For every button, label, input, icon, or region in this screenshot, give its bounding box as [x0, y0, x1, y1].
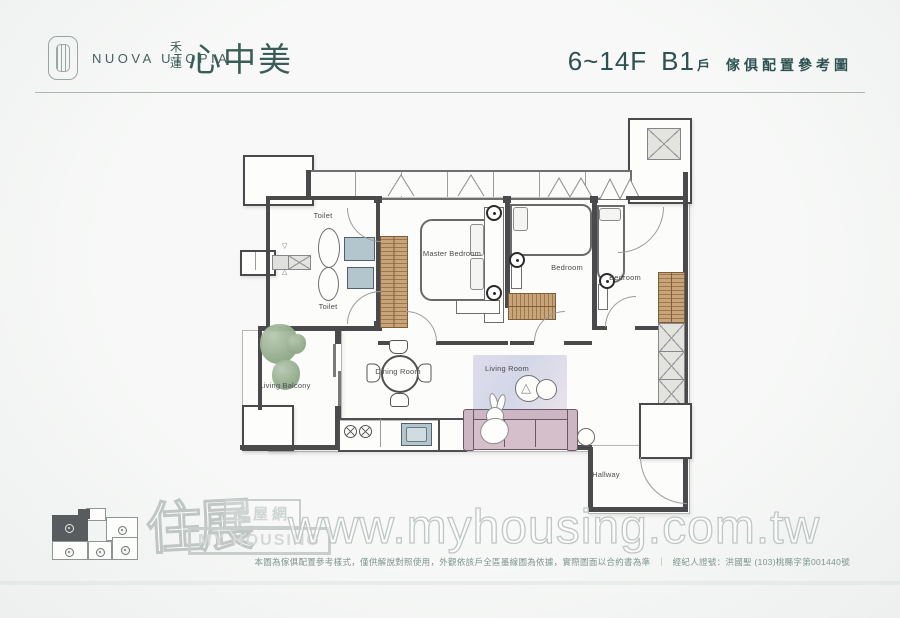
stove-burner-icon — [359, 425, 372, 438]
brand-emblem-icon — [48, 36, 78, 80]
fixture-ring-icon — [486, 205, 502, 221]
room-label-bedroom-right: Bedroom — [595, 273, 655, 282]
pipe-shaft-icon — [658, 351, 685, 381]
unit-marker-icon — [65, 524, 74, 533]
shaft-duct-icon — [288, 255, 311, 270]
watermark-url: www.myhousing.com.tw — [288, 500, 820, 555]
room-label-toilet-lower: Toilet — [302, 302, 354, 311]
unit-marker-icon — [121, 546, 130, 555]
wall-column — [503, 196, 511, 203]
wall-column — [590, 196, 598, 203]
plan-title: 6~14F B1 戶 傢俱配置參考圖 — [568, 46, 852, 77]
plan-title-unit: B1 — [661, 46, 695, 77]
brand-name-cn-vertical: 禾蓮 — [170, 39, 185, 71]
room-label-bedroom-middle: Bedroom — [537, 263, 597, 272]
plan-title-floor: 6~14F — [568, 46, 647, 77]
master-wardrobe — [380, 236, 408, 328]
ottoman — [577, 428, 595, 446]
disclaimer-separator: ｜ — [657, 557, 666, 567]
duct-niche-divider — [255, 252, 256, 270]
exterior-duct-niche — [240, 250, 276, 276]
sofa-cushion-line — [535, 420, 536, 447]
toilet-fixture — [318, 267, 339, 301]
bedroom-bench — [456, 300, 500, 314]
license-text: 經紀人證號：洪國聖 (103)桃縣字第001440號 — [673, 557, 850, 567]
unit-marker-icon — [96, 548, 105, 557]
header-divider — [35, 92, 865, 93]
brand-name-cn-main: 心中美 — [188, 33, 293, 81]
wall-segment — [266, 196, 382, 200]
wall-segment — [335, 328, 341, 344]
bedroom-closet — [658, 272, 685, 323]
flyer-page: NUOVA UTOPIA 禾蓮 心中美 6~14F B1 戶 傢俱配置參考圖 — [0, 0, 900, 618]
keyplan — [50, 506, 140, 564]
triangle-art-icon: △ — [521, 381, 531, 394]
entry-cabinet — [639, 403, 692, 459]
unit-marker-icon — [65, 548, 74, 557]
bathroom-sink — [347, 267, 374, 289]
bottom-edge-strip — [0, 581, 900, 585]
fixture-ring-icon — [509, 252, 525, 268]
wall-art-circle — [536, 379, 557, 400]
wall-segment — [635, 326, 658, 330]
fixture-ring-icon — [486, 285, 502, 301]
vent-mark-icon: ▽ — [282, 243, 287, 250]
room-label-hallway: Hallway — [566, 470, 646, 479]
brand-emblem-bars-icon — [56, 44, 70, 72]
pillow — [470, 258, 484, 290]
toilet-fixture — [318, 228, 340, 268]
plan-title-unit-suffix: 戶 — [697, 55, 710, 74]
wall-column — [374, 196, 382, 203]
floor-plan: ▽ △ — [230, 112, 700, 517]
rabbit-body — [476, 414, 512, 448]
wall-segment — [510, 341, 534, 345]
sliding-door-panel — [333, 344, 336, 377]
room-label-living-room: Living Room — [474, 364, 540, 373]
sliding-door-panel — [338, 371, 341, 406]
room-label-master-bedroom: Master Bedroom — [412, 249, 492, 258]
plan-title-desc: 傢俱配置參考圖 — [726, 55, 852, 75]
room-label-living-balcony: Living Balcony — [245, 381, 325, 390]
wall-segment — [436, 341, 508, 345]
pipe-shaft-icon — [658, 323, 685, 353]
wall-segment — [564, 341, 592, 345]
elevator-shaft-icon — [647, 128, 681, 160]
counter-divider — [380, 419, 381, 447]
kitchen-sink-basin — [406, 427, 427, 442]
wall-segment — [626, 196, 688, 200]
pillow — [513, 207, 528, 231]
wall-segment — [306, 170, 311, 198]
disclaimer-text: 本圖為傢俱配置參考樣式，僅供解說對照使用，外觀依該戶全區墨線圖為依據，實際圖面以… — [254, 557, 650, 567]
room-label-toilet-upper: Toilet — [297, 211, 349, 220]
room-label-dining-room: Dining Room — [358, 367, 438, 376]
wall-segment — [266, 198, 270, 328]
unit-marker-icon — [118, 526, 127, 535]
footer-disclaimer: 本圖為傢俱配置參考樣式，僅供解說對照使用，外觀依該戶全區墨線圖為依據，實際圖面以… — [254, 556, 850, 568]
dining-chair — [390, 393, 409, 407]
vent-mark-icon: △ — [282, 269, 287, 276]
stove-burner-icon — [344, 425, 357, 438]
dining-chair — [389, 340, 408, 354]
rabbit-doll — [477, 392, 513, 444]
